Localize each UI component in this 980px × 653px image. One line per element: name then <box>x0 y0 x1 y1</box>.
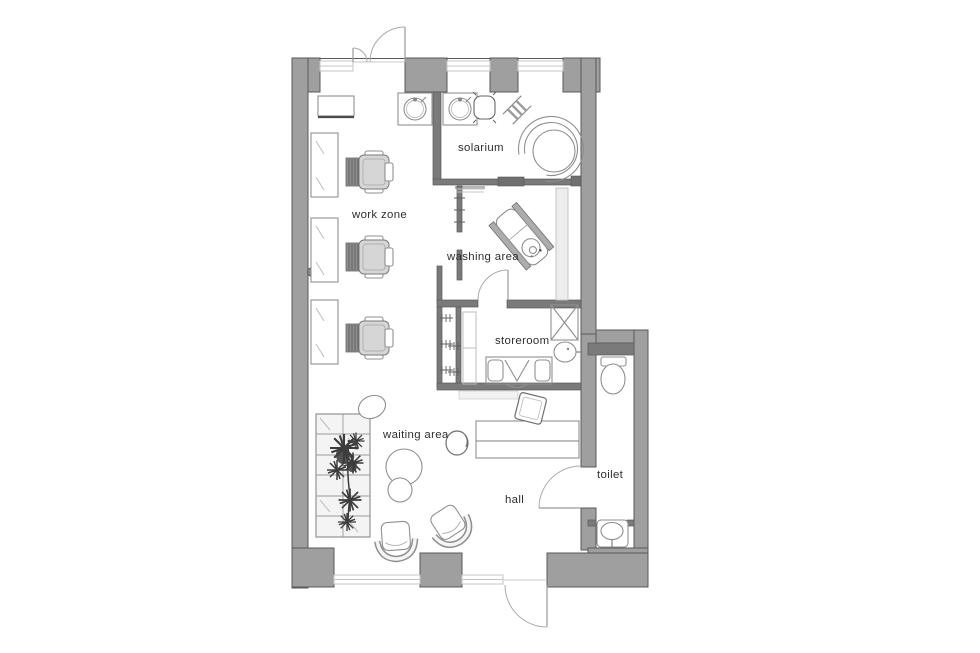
room-label-solarium: solarium <box>458 142 504 154</box>
mirror-station <box>311 300 338 364</box>
waiting-area-furniture <box>316 391 476 560</box>
x-cabinet <box>551 305 578 340</box>
reception-stool <box>446 431 468 455</box>
sink-basin <box>398 93 432 125</box>
solarium-sliding-door <box>498 177 524 186</box>
floor-plan-drawing: work zone solarium washing area storeroo… <box>0 0 980 653</box>
solarium-furniture <box>443 92 584 181</box>
floor-mat <box>459 391 518 399</box>
storeroom-north-wall-left <box>437 300 478 307</box>
storeroom-north-wall-right <box>507 300 581 308</box>
room-label-waiting-area: waiting area <box>382 429 449 441</box>
wall-stub <box>571 176 581 186</box>
extension-right-wall <box>634 330 648 560</box>
styling-chair <box>346 317 393 359</box>
top-wall-pillar <box>490 58 518 92</box>
room-label-hall: hall <box>505 494 524 506</box>
room-label-washing-area: washing area <box>446 251 519 263</box>
bottom-wall-pillar <box>420 553 462 587</box>
closet-left-wall <box>437 307 442 386</box>
armchair <box>376 521 416 561</box>
bottom-right-corner-block <box>547 553 648 587</box>
reception-desk <box>476 421 579 458</box>
hall-furniture <box>446 391 579 458</box>
wall-cabinet <box>318 96 354 116</box>
stand-up-solarium <box>519 116 584 181</box>
ottoman <box>386 449 422 502</box>
reception-chair <box>514 392 547 425</box>
side-counter <box>556 188 568 300</box>
storeroom-door <box>478 270 508 300</box>
right-wall <box>581 58 596 334</box>
room-label-work-zone: work zone <box>351 209 407 221</box>
towel-ladder <box>503 96 531 124</box>
floor-plan-page: work zone solarium washing area storeroo… <box>0 0 980 653</box>
toilet-north-wall <box>588 343 634 355</box>
washing-area-furniture <box>457 188 568 300</box>
toilet-door <box>539 466 581 508</box>
basin-alcove-stub <box>588 520 596 526</box>
work-zone-furniture <box>311 93 432 364</box>
sink-basin <box>443 93 477 125</box>
top-wall-pillar <box>405 58 447 92</box>
bottom-left-corner-pillar <box>292 548 334 587</box>
styling-chair <box>346 236 393 278</box>
armchair <box>424 500 476 552</box>
toilet-furniture <box>597 357 628 547</box>
workzone-washing-partition <box>457 186 462 232</box>
closet-right-wall <box>456 307 461 386</box>
mirror-station <box>311 133 338 197</box>
styling-chair <box>346 151 393 193</box>
left-wall <box>292 58 308 588</box>
wc <box>601 357 626 394</box>
room-label-storeroom: storeroom <box>495 335 549 347</box>
bottom-entrance-door <box>503 580 547 627</box>
mirror-station <box>311 218 338 282</box>
sink-partition-wall <box>433 92 441 180</box>
room-label-toilet: toilet <box>597 469 624 481</box>
toilet-left-wall-lower <box>581 508 596 550</box>
top-entrance-double-door <box>353 27 405 62</box>
partition-segment <box>437 266 442 302</box>
washbasin <box>597 520 628 547</box>
corner-sink <box>554 342 581 362</box>
